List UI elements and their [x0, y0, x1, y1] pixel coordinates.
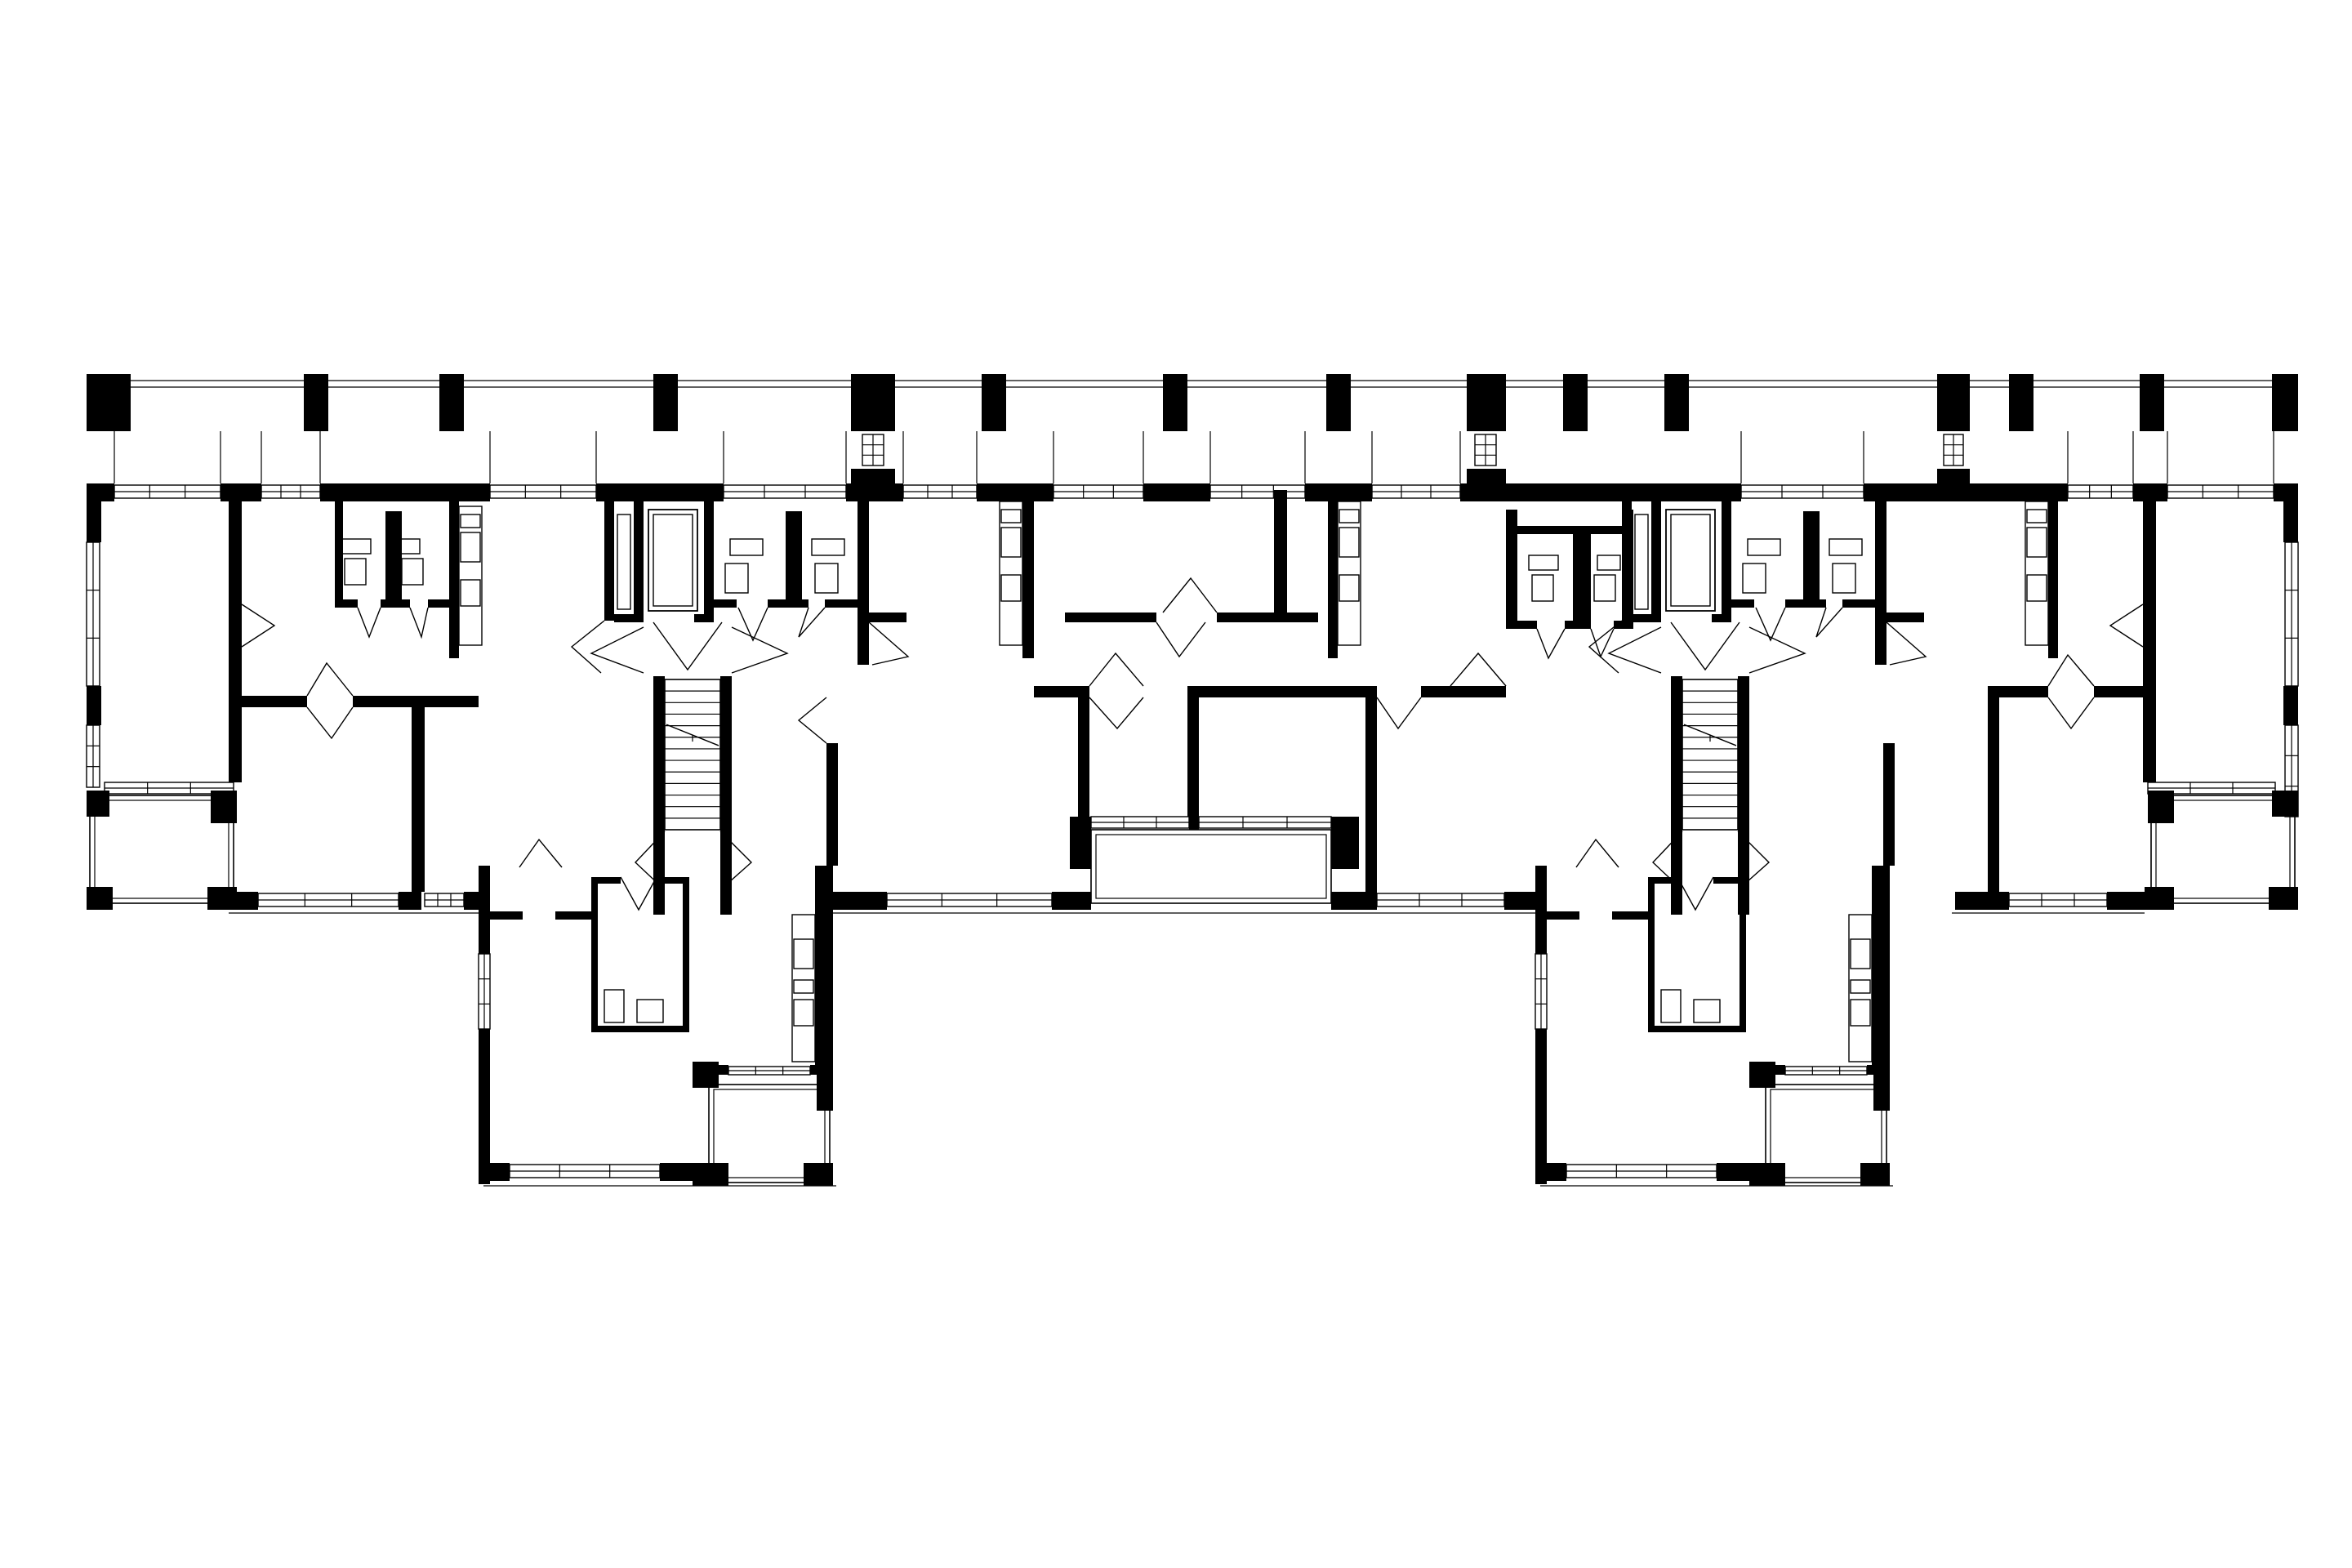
elevator-right [1666, 510, 1715, 611]
stairwell-left [665, 679, 720, 830]
floor-plan [0, 0, 2352, 1568]
balcony-middle [1091, 830, 1331, 903]
elevators-layer [648, 510, 1715, 611]
stairwell-right [1682, 679, 1738, 830]
floor-plan-page [0, 0, 2352, 1568]
stairs-layer [665, 679, 1738, 830]
walls-layer [87, 374, 2298, 1186]
elevator-left [648, 510, 697, 611]
